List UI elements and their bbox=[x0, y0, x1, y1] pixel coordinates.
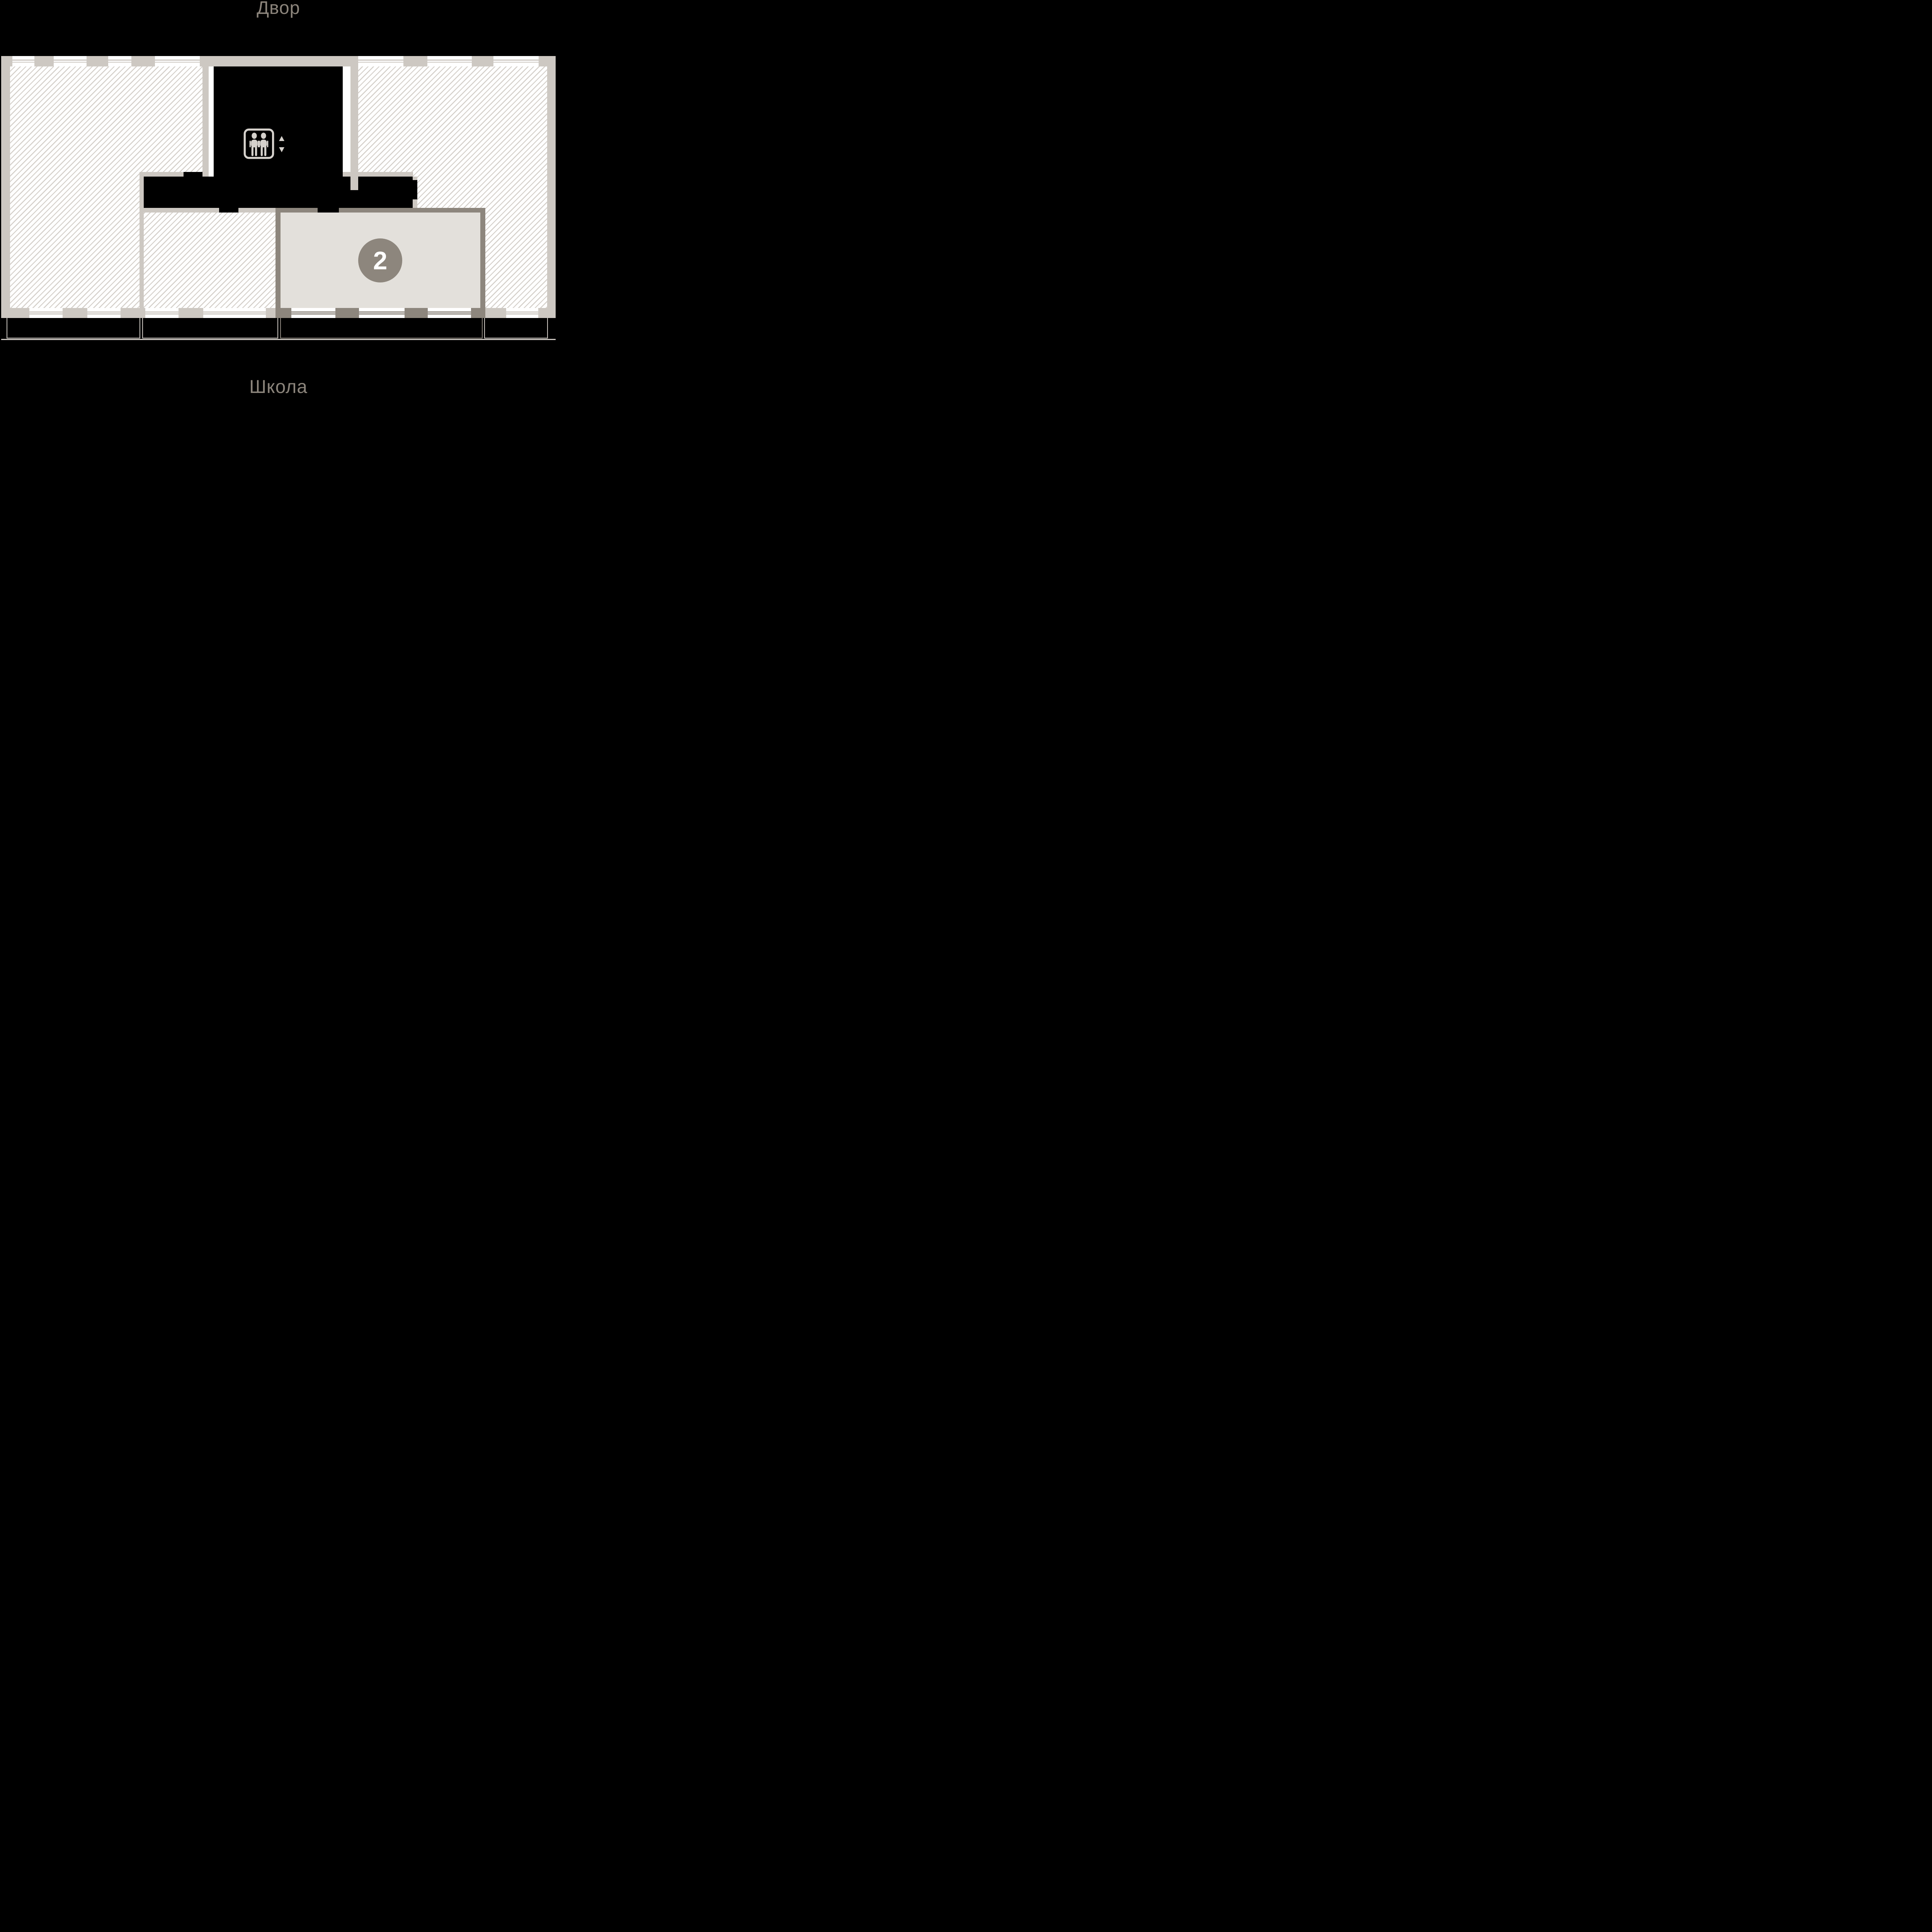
unit-2-badge[interactable]: 2 bbox=[358, 238, 403, 283]
wall-pier bbox=[403, 56, 427, 66]
door-opening bbox=[219, 208, 238, 213]
outer-wall-bottom-left bbox=[1, 308, 276, 318]
wall-pier bbox=[539, 56, 556, 66]
interior-wall bbox=[202, 172, 209, 177]
wall-pier bbox=[179, 308, 203, 318]
elevator-people-icon bbox=[243, 128, 274, 159]
person-figure bbox=[259, 133, 269, 156]
interior-wall bbox=[350, 66, 358, 190]
wall-pier bbox=[131, 56, 155, 66]
outer-wall-left bbox=[1, 66, 10, 308]
ground-line bbox=[1, 339, 556, 340]
outer-wall-bottom-right bbox=[485, 308, 556, 318]
door-opening bbox=[184, 172, 202, 177]
shaft-gap bbox=[343, 66, 350, 172]
unit-2-wall-top bbox=[276, 208, 317, 213]
door-opening bbox=[413, 180, 417, 199]
arrow-up-icon bbox=[279, 136, 284, 141]
balcony bbox=[7, 318, 140, 338]
corridor-left bbox=[144, 177, 214, 208]
unit-2-wall-left bbox=[276, 208, 281, 318]
interior-wall bbox=[343, 172, 413, 177]
person-figure bbox=[250, 133, 259, 156]
wall-pier bbox=[121, 308, 145, 318]
wall-pier bbox=[1, 56, 12, 66]
wall-pier bbox=[1, 308, 29, 318]
unit-2-wall-top bbox=[339, 208, 485, 213]
wall-core-header bbox=[200, 56, 358, 66]
school-label: Школа bbox=[0, 377, 557, 395]
interior-wall bbox=[238, 208, 276, 213]
balcony bbox=[142, 318, 278, 338]
unit-2-entrance-door bbox=[318, 208, 339, 213]
elevator-core bbox=[214, 66, 343, 208]
arrow-down-icon bbox=[279, 147, 284, 152]
floor-plan: 2 bbox=[0, 0, 557, 395]
wall-pier bbox=[405, 308, 427, 318]
balcony bbox=[484, 318, 548, 338]
wall-pier bbox=[87, 56, 108, 66]
wall-pier bbox=[538, 308, 556, 318]
window-glass-line bbox=[276, 313, 485, 314]
interior-wall bbox=[139, 172, 184, 177]
interior-wall bbox=[139, 177, 144, 308]
unit-2-wall-bottom bbox=[276, 308, 485, 318]
interior-wall bbox=[202, 66, 209, 172]
interior-wall bbox=[144, 208, 219, 213]
floor-plan-page: Двор bbox=[0, 0, 557, 395]
outer-wall-top bbox=[1, 56, 556, 66]
unit-2-wall-right bbox=[480, 208, 485, 318]
wall-pier bbox=[276, 308, 291, 318]
wall-pier bbox=[485, 308, 507, 318]
unit-2-number: 2 bbox=[373, 246, 388, 275]
wall-pier bbox=[335, 308, 359, 318]
wall-pier bbox=[471, 308, 485, 318]
wall-pier bbox=[34, 56, 54, 66]
outer-wall-right bbox=[547, 66, 556, 308]
window-glass-line bbox=[276, 311, 485, 313]
wall-pier bbox=[63, 308, 87, 318]
wall-pier bbox=[472, 56, 493, 66]
unit-2-balcony bbox=[280, 318, 483, 338]
wall-pier bbox=[266, 308, 276, 318]
shaft-gap bbox=[209, 66, 214, 177]
